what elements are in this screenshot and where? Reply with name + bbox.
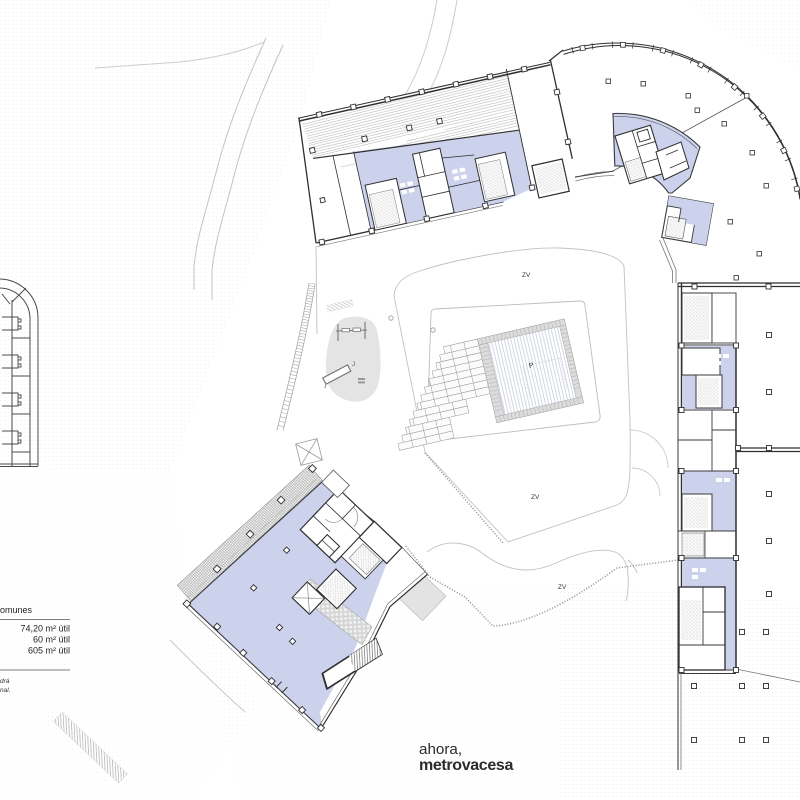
svg-text:drá: drá	[0, 678, 10, 685]
svg-text:ZV: ZV	[558, 584, 567, 591]
svg-text:ZV: ZV	[531, 494, 540, 501]
svg-text:nal.: nal.	[0, 687, 11, 694]
svg-text:ZV: ZV	[522, 272, 531, 279]
svg-text:60 m² útil: 60 m² útil	[33, 635, 70, 645]
svg-text:ahora,: ahora,	[419, 741, 462, 758]
svg-text:omunes: omunes	[0, 605, 33, 615]
svg-text:J: J	[352, 362, 355, 368]
svg-text:605 m² útil: 605 m² útil	[28, 646, 70, 656]
svg-text:74,20 m² útil: 74,20 m² útil	[20, 624, 70, 634]
svg-text:metrovacesa: metrovacesa	[419, 757, 513, 774]
